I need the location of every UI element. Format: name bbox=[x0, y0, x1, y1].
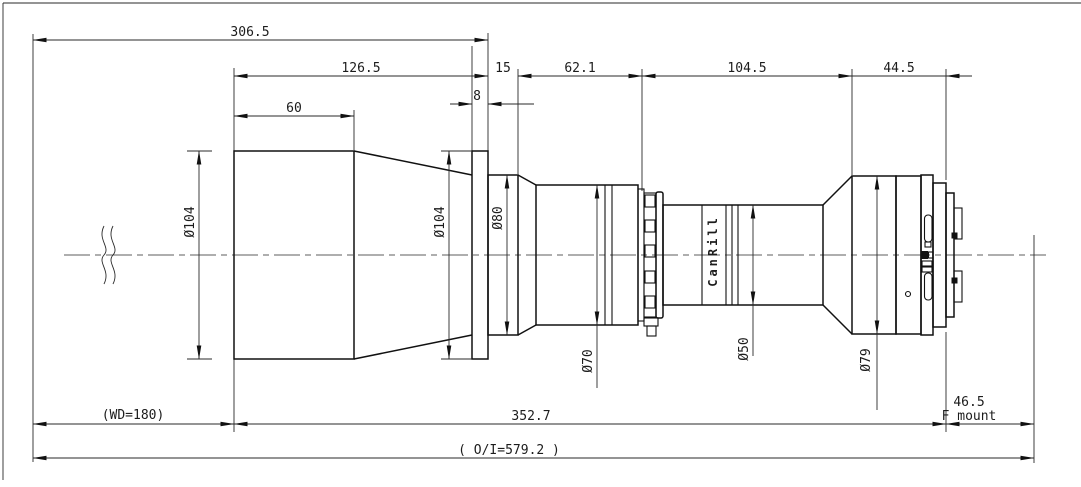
dim-body-length: 352.7 bbox=[234, 409, 946, 424]
dia-label: Ø104 bbox=[183, 206, 198, 237]
dia-label: Ø50 bbox=[737, 337, 752, 360]
index-dot bbox=[921, 251, 928, 259]
dim-label: 126.5 bbox=[341, 61, 380, 76]
dia-label: Ø80 bbox=[491, 206, 506, 229]
dim-label: 46.5 bbox=[953, 395, 984, 410]
dia-label: Ø104 bbox=[433, 206, 448, 237]
bayonet-tab-bottom bbox=[954, 271, 962, 302]
dim-overall-front: 306.5 bbox=[33, 25, 488, 40]
dim-overall-total: ( O/I=579.2 ) bbox=[33, 443, 1034, 458]
dim-section-chain: 126.5 15 62.1 104.5 44.5 bbox=[234, 61, 972, 76]
dim-label: 44.5 bbox=[883, 61, 914, 76]
dim-label: 8 bbox=[473, 89, 481, 104]
dim-label: 60 bbox=[286, 101, 302, 116]
clamp-screw bbox=[644, 318, 658, 326]
dim-label: 352.7 bbox=[511, 409, 550, 424]
brand-text: CanRill bbox=[706, 215, 720, 287]
set-screw bbox=[906, 292, 911, 297]
lens-technical-drawing: CanRill 306.5 bbox=[0, 0, 1081, 487]
dim-working-distance: (WD=180) bbox=[33, 408, 234, 424]
dim-label: 104.5 bbox=[727, 61, 766, 76]
knurled-connector bbox=[638, 189, 663, 336]
dim-label: 306.5 bbox=[230, 25, 269, 40]
release-slot-bottom bbox=[925, 273, 933, 300]
release-slot-top bbox=[925, 215, 933, 242]
dia-rear-barrel: Ø79 bbox=[859, 176, 877, 410]
dim-front-cap: 60 bbox=[234, 101, 354, 116]
extension-lines bbox=[33, 33, 1034, 463]
dia-label: Ø79 bbox=[859, 348, 874, 371]
dim-label: 62.1 bbox=[564, 61, 595, 76]
dim-flange-focal: 46.5 F mount bbox=[942, 395, 1034, 424]
dim-label: ( O/I=579.2 ) bbox=[458, 443, 560, 458]
dia-mid-barrel: Ø50 bbox=[737, 205, 753, 361]
mount-type-label: F mount bbox=[942, 409, 997, 424]
dim-label: 15 bbox=[495, 61, 511, 76]
dia-focus-barrel: Ø70 bbox=[581, 185, 597, 388]
dia-label: Ø70 bbox=[581, 349, 596, 372]
dim-label: (WD=180) bbox=[102, 408, 165, 423]
dim-flange-thickness: 8 bbox=[450, 89, 534, 104]
